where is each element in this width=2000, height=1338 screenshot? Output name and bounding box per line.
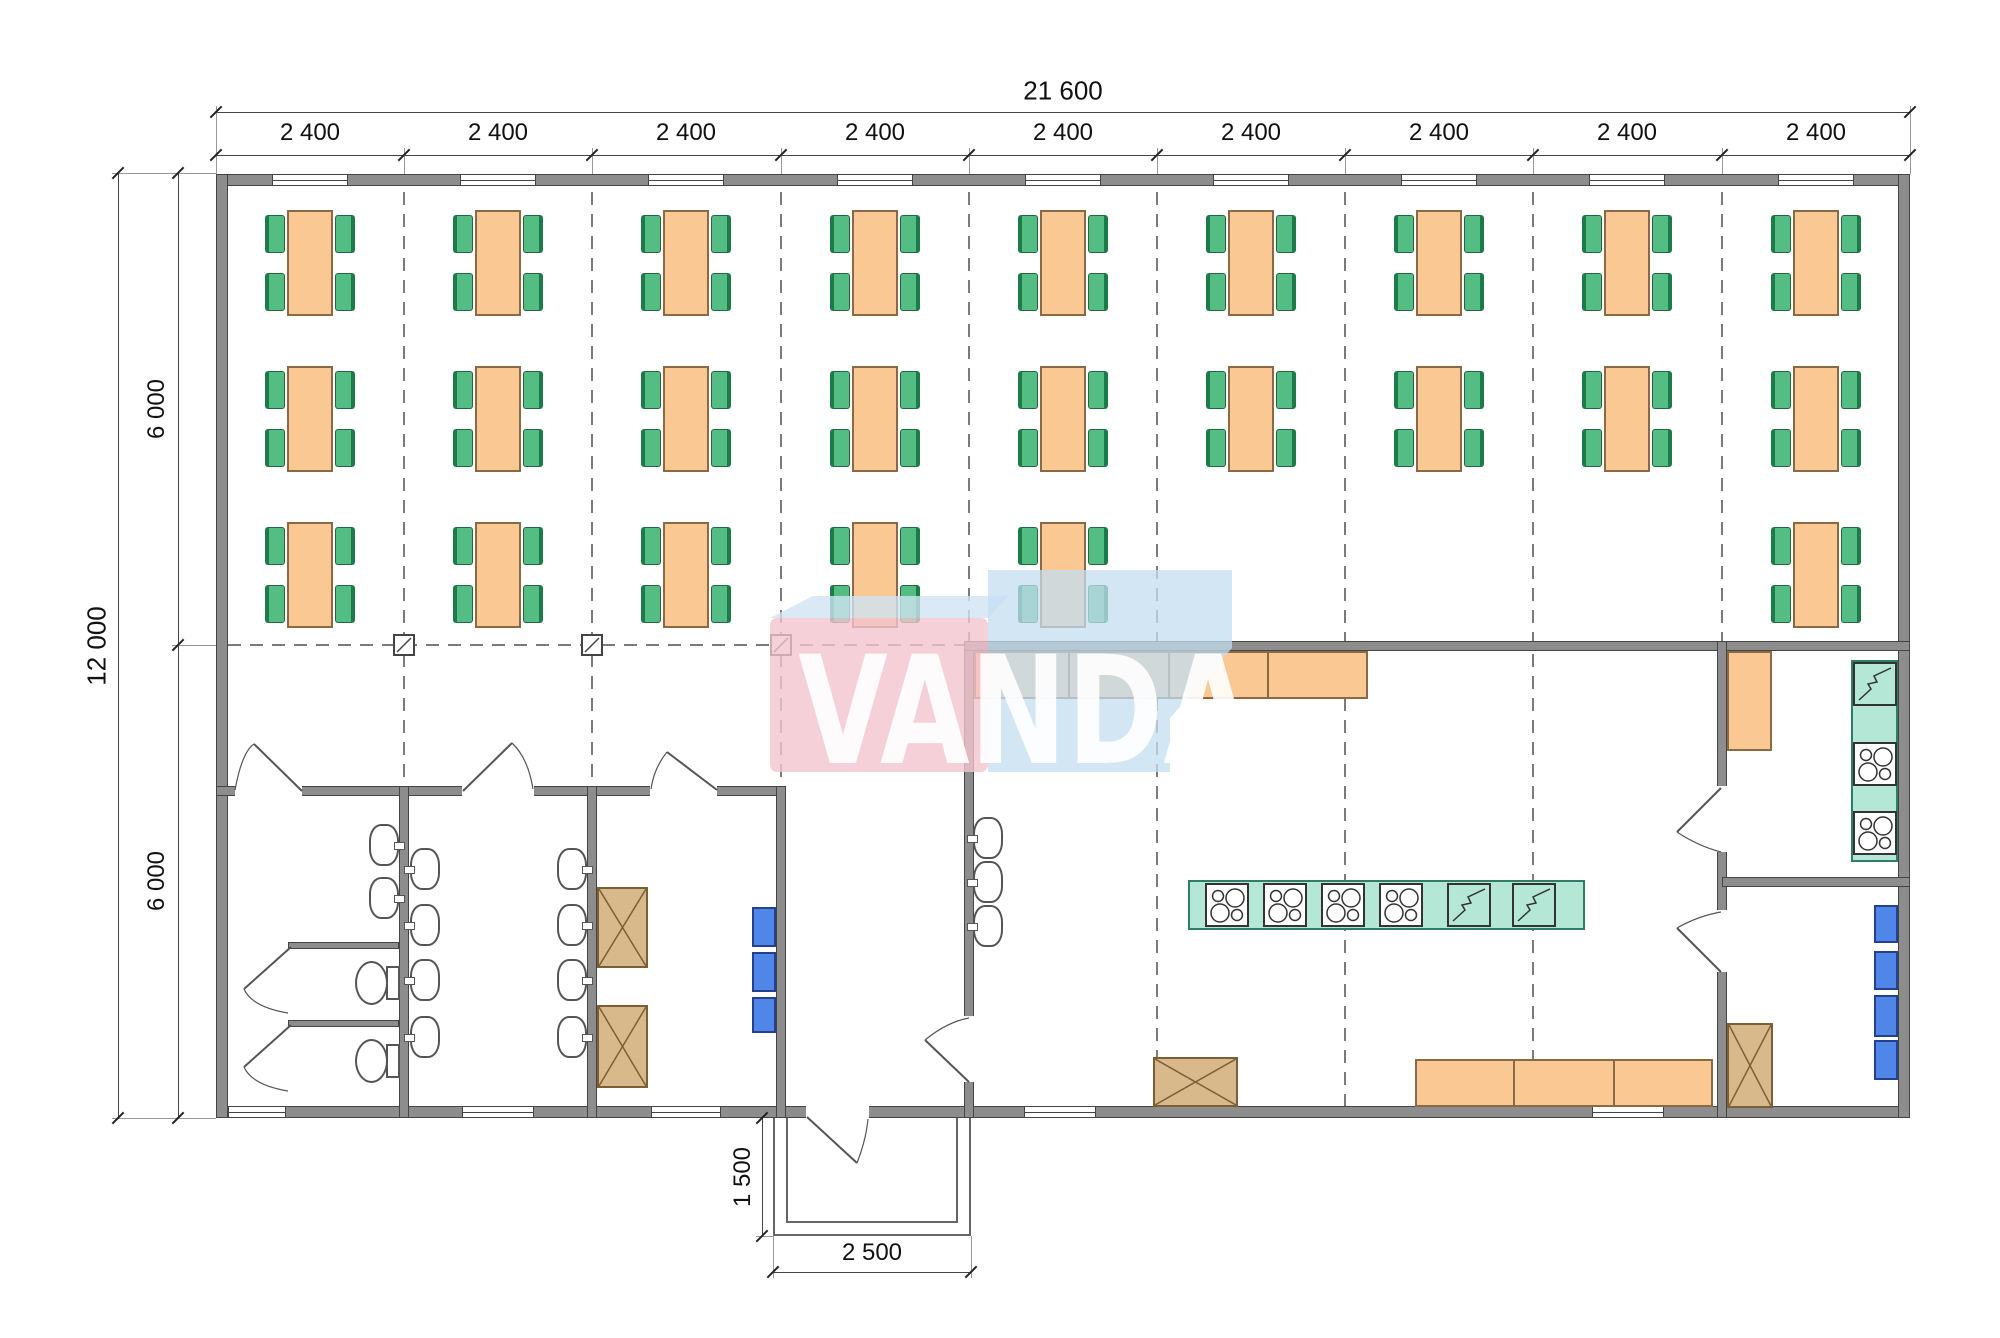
door-kitchen-room-lower-swing-icon xyxy=(1677,912,1721,972)
chair-icon xyxy=(1841,527,1861,565)
wall xyxy=(288,1020,399,1027)
chair-icon xyxy=(265,429,285,467)
window-glass-line xyxy=(1214,180,1288,181)
dining-table xyxy=(475,522,521,628)
window-symbol xyxy=(272,174,348,186)
dining-table xyxy=(1416,210,1462,316)
dimension-label: 21 600 xyxy=(1023,76,1103,107)
chair-icon xyxy=(1088,215,1108,253)
window-glass-line xyxy=(1593,1112,1663,1113)
chair-icon xyxy=(900,371,920,409)
dining-table xyxy=(475,210,521,316)
chair-icon xyxy=(830,429,850,467)
dining-table xyxy=(1040,210,1086,316)
chair-icon xyxy=(1582,215,1602,253)
chair-icon xyxy=(711,371,731,409)
grid-line-vertical xyxy=(1721,192,1723,641)
chair-icon xyxy=(1771,273,1791,311)
chair-icon xyxy=(711,429,731,467)
wall-opening xyxy=(462,785,534,797)
dining-table-group xyxy=(1771,522,1861,628)
window-glass-line xyxy=(649,180,723,181)
dining-table xyxy=(1793,522,1839,628)
stove-burners-icon xyxy=(1263,883,1307,927)
sink-icon xyxy=(557,1016,587,1058)
kitchen-counter-orange xyxy=(974,651,1368,699)
counter-divider xyxy=(1168,653,1170,697)
dining-table-group xyxy=(1206,210,1296,316)
chair-icon xyxy=(1088,371,1108,409)
chair-icon xyxy=(453,273,473,311)
wall-opening xyxy=(1716,786,1728,852)
chair-icon xyxy=(523,215,543,253)
chair-icon xyxy=(453,585,473,623)
chair-icon xyxy=(641,429,661,467)
chair-icon xyxy=(1088,585,1108,623)
sink-tap-icon xyxy=(582,977,593,985)
stove-burners-icon xyxy=(1379,883,1423,927)
chair-icon xyxy=(1771,585,1791,623)
appliance-blue-box xyxy=(1874,1040,1898,1080)
stove-burners-icon xyxy=(1321,883,1365,927)
dining-table-group xyxy=(641,522,731,628)
dimension-label: 2 400 xyxy=(468,119,528,147)
chair-icon xyxy=(1841,429,1861,467)
dimension-line-top-bays xyxy=(216,155,1910,156)
sink-tap-icon xyxy=(404,1034,415,1042)
dining-table-group xyxy=(1394,210,1484,316)
dimension-label: 2 400 xyxy=(1033,119,1093,147)
dining-table-group xyxy=(265,210,355,316)
dimension-line-left-total xyxy=(118,173,119,1118)
window-glass-line xyxy=(229,1112,285,1113)
sink-icon xyxy=(369,824,399,866)
window-symbol xyxy=(1024,1106,1096,1118)
sink-tap-icon xyxy=(394,842,405,850)
dining-table xyxy=(1040,522,1086,628)
dining-table xyxy=(1604,210,1650,316)
door-stall-2-swing-icon xyxy=(244,1025,291,1091)
wall xyxy=(1722,877,1910,887)
wall-opening xyxy=(235,785,302,797)
chair-icon xyxy=(1394,273,1414,311)
window-symbol xyxy=(648,174,724,186)
extension-line xyxy=(1910,106,1911,174)
appliance-blue-box xyxy=(752,997,776,1033)
column-grid-icon xyxy=(581,634,603,656)
chair-icon xyxy=(1276,371,1296,409)
wall-opening xyxy=(806,1105,869,1119)
appliance-zigzag-icon xyxy=(1512,883,1556,927)
chair-icon xyxy=(1206,273,1226,311)
chair-icon xyxy=(1018,585,1038,623)
chair-icon xyxy=(641,585,661,623)
dining-table-group xyxy=(830,210,920,316)
window-glass-line xyxy=(1590,180,1664,181)
chair-icon xyxy=(265,585,285,623)
cabinet-cross-icon xyxy=(597,887,648,968)
dining-table xyxy=(1228,210,1274,316)
chair-icon xyxy=(1464,215,1484,253)
appliance-blue-box xyxy=(1874,951,1898,990)
dimension-label: 2 400 xyxy=(280,119,340,147)
sink-tap-icon xyxy=(967,879,978,887)
chair-icon xyxy=(1088,273,1108,311)
window-glass-line xyxy=(1779,180,1853,181)
toilet-tank-icon xyxy=(386,966,400,1000)
counter-divider xyxy=(1613,1061,1615,1105)
chair-icon xyxy=(335,585,355,623)
dimension-label: 6 000 xyxy=(143,851,171,911)
extension-line xyxy=(112,1118,216,1119)
chair-icon xyxy=(523,371,543,409)
chair-icon xyxy=(711,527,731,565)
window-glass-line xyxy=(838,180,912,181)
dimension-label: 12 000 xyxy=(82,606,113,686)
dining-table-group xyxy=(453,522,543,628)
chair-icon xyxy=(1841,585,1861,623)
window-glass-line xyxy=(1026,180,1100,181)
sink-icon xyxy=(973,817,1003,859)
chair-icon xyxy=(1771,527,1791,565)
window-symbol xyxy=(1025,174,1101,186)
chair-icon xyxy=(1582,273,1602,311)
chair-icon xyxy=(1018,215,1038,253)
chair-icon xyxy=(900,527,920,565)
dimension-label: 2 400 xyxy=(1409,119,1469,147)
window-symbol xyxy=(1778,174,1854,186)
chair-icon xyxy=(641,371,661,409)
dining-table-group xyxy=(1018,522,1108,628)
dining-table xyxy=(475,366,521,472)
window-glass-line xyxy=(1025,1112,1095,1113)
sink-tap-icon xyxy=(967,835,978,843)
sink-tap-icon xyxy=(394,895,405,903)
window-glass-line xyxy=(463,1112,533,1113)
chair-icon xyxy=(1206,429,1226,467)
dining-table xyxy=(663,522,709,628)
dining-table-group xyxy=(1018,210,1108,316)
dining-table xyxy=(1416,366,1462,472)
sink-icon xyxy=(410,904,440,946)
chair-icon xyxy=(711,215,731,253)
chair-icon xyxy=(1276,215,1296,253)
door-washroom-swing-icon xyxy=(463,743,533,791)
appliance-blue-box xyxy=(752,907,776,947)
chair-icon xyxy=(1394,215,1414,253)
appliance-zigzag-icon xyxy=(1853,662,1897,706)
chair-icon xyxy=(335,371,355,409)
dining-table xyxy=(852,210,898,316)
chair-icon xyxy=(1018,527,1038,565)
extension-line xyxy=(112,173,216,174)
sink-tap-icon xyxy=(582,922,593,930)
dining-table-group xyxy=(641,366,731,472)
dining-table xyxy=(852,366,898,472)
watermark-pink-box xyxy=(770,618,988,772)
extension-line xyxy=(216,106,217,174)
dining-table xyxy=(1793,366,1839,472)
dimension-label: 2 400 xyxy=(1786,119,1846,147)
dining-table-group xyxy=(265,366,355,472)
chair-icon xyxy=(1652,215,1672,253)
window-symbol xyxy=(1401,174,1477,186)
chair-icon xyxy=(265,371,285,409)
column-grid-icon xyxy=(770,634,792,656)
grid-line-vertical xyxy=(780,192,782,786)
chair-icon xyxy=(1088,429,1108,467)
chair-icon xyxy=(1652,429,1672,467)
dining-table-group xyxy=(1582,210,1672,316)
dining-table xyxy=(1040,366,1086,472)
appliance-blue-box xyxy=(1874,905,1898,943)
sink-icon xyxy=(557,904,587,946)
chair-icon xyxy=(1841,215,1861,253)
chair-icon xyxy=(830,585,850,623)
chair-icon xyxy=(265,527,285,565)
chair-icon xyxy=(1206,215,1226,253)
grid-line-vertical xyxy=(403,192,405,786)
chair-icon xyxy=(900,429,920,467)
window-symbol xyxy=(460,174,536,186)
counter-divider xyxy=(1513,1061,1515,1105)
dining-table-group xyxy=(830,366,920,472)
chair-icon xyxy=(523,585,543,623)
dining-table-group xyxy=(453,210,543,316)
chair-icon xyxy=(453,527,473,565)
chair-icon xyxy=(1464,273,1484,311)
dimension-line-top-total xyxy=(216,112,1910,113)
chair-icon xyxy=(1771,371,1791,409)
chair-icon xyxy=(453,429,473,467)
wall xyxy=(216,174,228,1118)
sink-tap-icon xyxy=(404,922,415,930)
chair-icon xyxy=(641,273,661,311)
chair-icon xyxy=(1582,429,1602,467)
sink-tap-icon xyxy=(582,1034,593,1042)
appliance-zigzag-icon xyxy=(1447,883,1491,927)
chair-icon xyxy=(265,215,285,253)
chair-icon xyxy=(711,273,731,311)
chair-icon xyxy=(453,371,473,409)
chair-icon xyxy=(1394,429,1414,467)
sink-tap-icon xyxy=(404,977,415,985)
window-glass-line xyxy=(461,180,535,181)
counter-divider xyxy=(1068,653,1070,697)
dining-table-group xyxy=(265,522,355,628)
dining-table-group xyxy=(1018,366,1108,472)
chair-icon xyxy=(1464,429,1484,467)
chair-icon xyxy=(900,215,920,253)
window-glass-line xyxy=(273,180,347,181)
toilet-icon xyxy=(355,1039,388,1083)
toilet-icon xyxy=(355,961,388,1005)
stove-burners-icon xyxy=(1853,742,1897,786)
window-symbol xyxy=(462,1106,534,1118)
chair-icon xyxy=(1841,371,1861,409)
dining-table-group xyxy=(1394,366,1484,472)
window-symbol xyxy=(651,1106,721,1118)
dining-table xyxy=(852,522,898,628)
chair-icon xyxy=(900,273,920,311)
door-kitchen-room-upper-swing-icon xyxy=(1677,788,1721,852)
chair-icon xyxy=(1652,371,1672,409)
chair-icon xyxy=(1018,371,1038,409)
dining-table xyxy=(1604,366,1650,472)
sink-tap-icon xyxy=(967,923,978,931)
dimension-label: 1 500 xyxy=(729,1147,757,1207)
dining-table xyxy=(287,522,333,628)
dimension-label: 2 400 xyxy=(656,119,716,147)
entrance-porch-inner xyxy=(786,1118,958,1223)
dimension-label: 2 400 xyxy=(845,119,905,147)
chair-icon xyxy=(1018,429,1038,467)
appliance-blue-box xyxy=(752,952,776,992)
chair-icon xyxy=(453,215,473,253)
kitchen-counter-orange xyxy=(1415,1059,1713,1107)
sink-icon xyxy=(973,905,1003,947)
floor-plan-canvas: 21 6002 4002 4002 4002 4002 4002 4002 40… xyxy=(0,0,2000,1338)
chair-icon xyxy=(1771,429,1791,467)
window-symbol xyxy=(837,174,913,186)
dining-table-group xyxy=(1206,366,1296,472)
chair-icon xyxy=(711,585,731,623)
chair-icon xyxy=(1018,273,1038,311)
window-symbol xyxy=(1592,1106,1664,1118)
counter-divider xyxy=(1267,653,1269,697)
cabinet-cross-icon xyxy=(1153,1057,1238,1107)
dimension-line-porch-depth xyxy=(762,1118,763,1236)
window-symbol xyxy=(1589,174,1665,186)
wall xyxy=(964,641,1910,651)
door-stall-1-swing-icon xyxy=(244,947,291,1013)
dining-table xyxy=(1228,366,1274,472)
dining-table-group xyxy=(453,366,543,472)
dining-table-group xyxy=(641,210,731,316)
cabinet-cross-icon xyxy=(597,1005,648,1088)
chair-icon xyxy=(641,215,661,253)
dining-table xyxy=(663,210,709,316)
dining-table-group xyxy=(1771,366,1861,472)
door-wc-left-swing-icon xyxy=(235,744,302,791)
chair-icon xyxy=(900,585,920,623)
chair-icon xyxy=(641,527,661,565)
chair-icon xyxy=(523,527,543,565)
window-symbol xyxy=(1213,174,1289,186)
chair-icon xyxy=(1276,273,1296,311)
wall xyxy=(587,786,597,1118)
chair-icon xyxy=(830,215,850,253)
dimension-label: 6 000 xyxy=(143,379,171,439)
wall-opening xyxy=(650,785,717,797)
chair-icon xyxy=(265,273,285,311)
sink-icon xyxy=(410,1016,440,1058)
dining-table-group xyxy=(1582,366,1672,472)
dining-table xyxy=(287,210,333,316)
sink-icon xyxy=(369,877,399,919)
wall xyxy=(399,786,409,1118)
toilet-tank-icon xyxy=(386,1044,400,1078)
stove-burners-icon xyxy=(1205,883,1249,927)
sink-tap-icon xyxy=(404,866,415,874)
chair-icon xyxy=(830,371,850,409)
window-glass-line xyxy=(1402,180,1476,181)
chair-icon xyxy=(1088,527,1108,565)
chair-icon xyxy=(1771,215,1791,253)
chair-icon xyxy=(335,429,355,467)
window-symbol xyxy=(228,1106,286,1118)
dining-table-group xyxy=(1771,210,1861,316)
chair-icon xyxy=(335,215,355,253)
chair-icon xyxy=(1206,371,1226,409)
chair-icon xyxy=(335,273,355,311)
chair-icon xyxy=(1464,371,1484,409)
chair-icon xyxy=(1582,371,1602,409)
chair-icon xyxy=(335,527,355,565)
wall-opening xyxy=(1716,910,1728,972)
chair-icon xyxy=(1394,371,1414,409)
cabinet-cross-icon xyxy=(1727,1023,1773,1108)
window-glass-line xyxy=(652,1112,720,1113)
sink-tap-icon xyxy=(582,866,593,874)
stove-burners-icon xyxy=(1853,811,1897,855)
wall-opening xyxy=(963,1016,975,1082)
dining-table xyxy=(1793,210,1839,316)
chair-icon xyxy=(1841,273,1861,311)
sink-icon xyxy=(410,848,440,890)
dimension-line-porch-width xyxy=(773,1272,971,1273)
sink-icon xyxy=(557,959,587,1001)
sink-icon xyxy=(410,959,440,1001)
chair-icon xyxy=(830,527,850,565)
grid-line-vertical xyxy=(591,192,593,786)
appliance-blue-box xyxy=(1874,995,1898,1037)
chair-icon xyxy=(523,429,543,467)
dimension-label: 2 400 xyxy=(1597,119,1657,147)
column-grid-icon xyxy=(393,634,415,656)
grid-line-vertical xyxy=(968,192,970,641)
kitchen-counter-orange xyxy=(1727,651,1772,751)
wall xyxy=(776,786,786,1118)
dimension-label: 2 400 xyxy=(1221,119,1281,147)
wall xyxy=(288,942,399,949)
chair-icon xyxy=(830,273,850,311)
dining-table xyxy=(663,366,709,472)
dimension-label: 2 500 xyxy=(842,1239,902,1267)
chair-icon xyxy=(1652,273,1672,311)
sink-icon xyxy=(557,848,587,890)
chair-icon xyxy=(523,273,543,311)
sink-icon xyxy=(973,861,1003,903)
dining-table xyxy=(287,366,333,472)
chair-icon xyxy=(1276,429,1296,467)
dining-table-group xyxy=(830,522,920,628)
